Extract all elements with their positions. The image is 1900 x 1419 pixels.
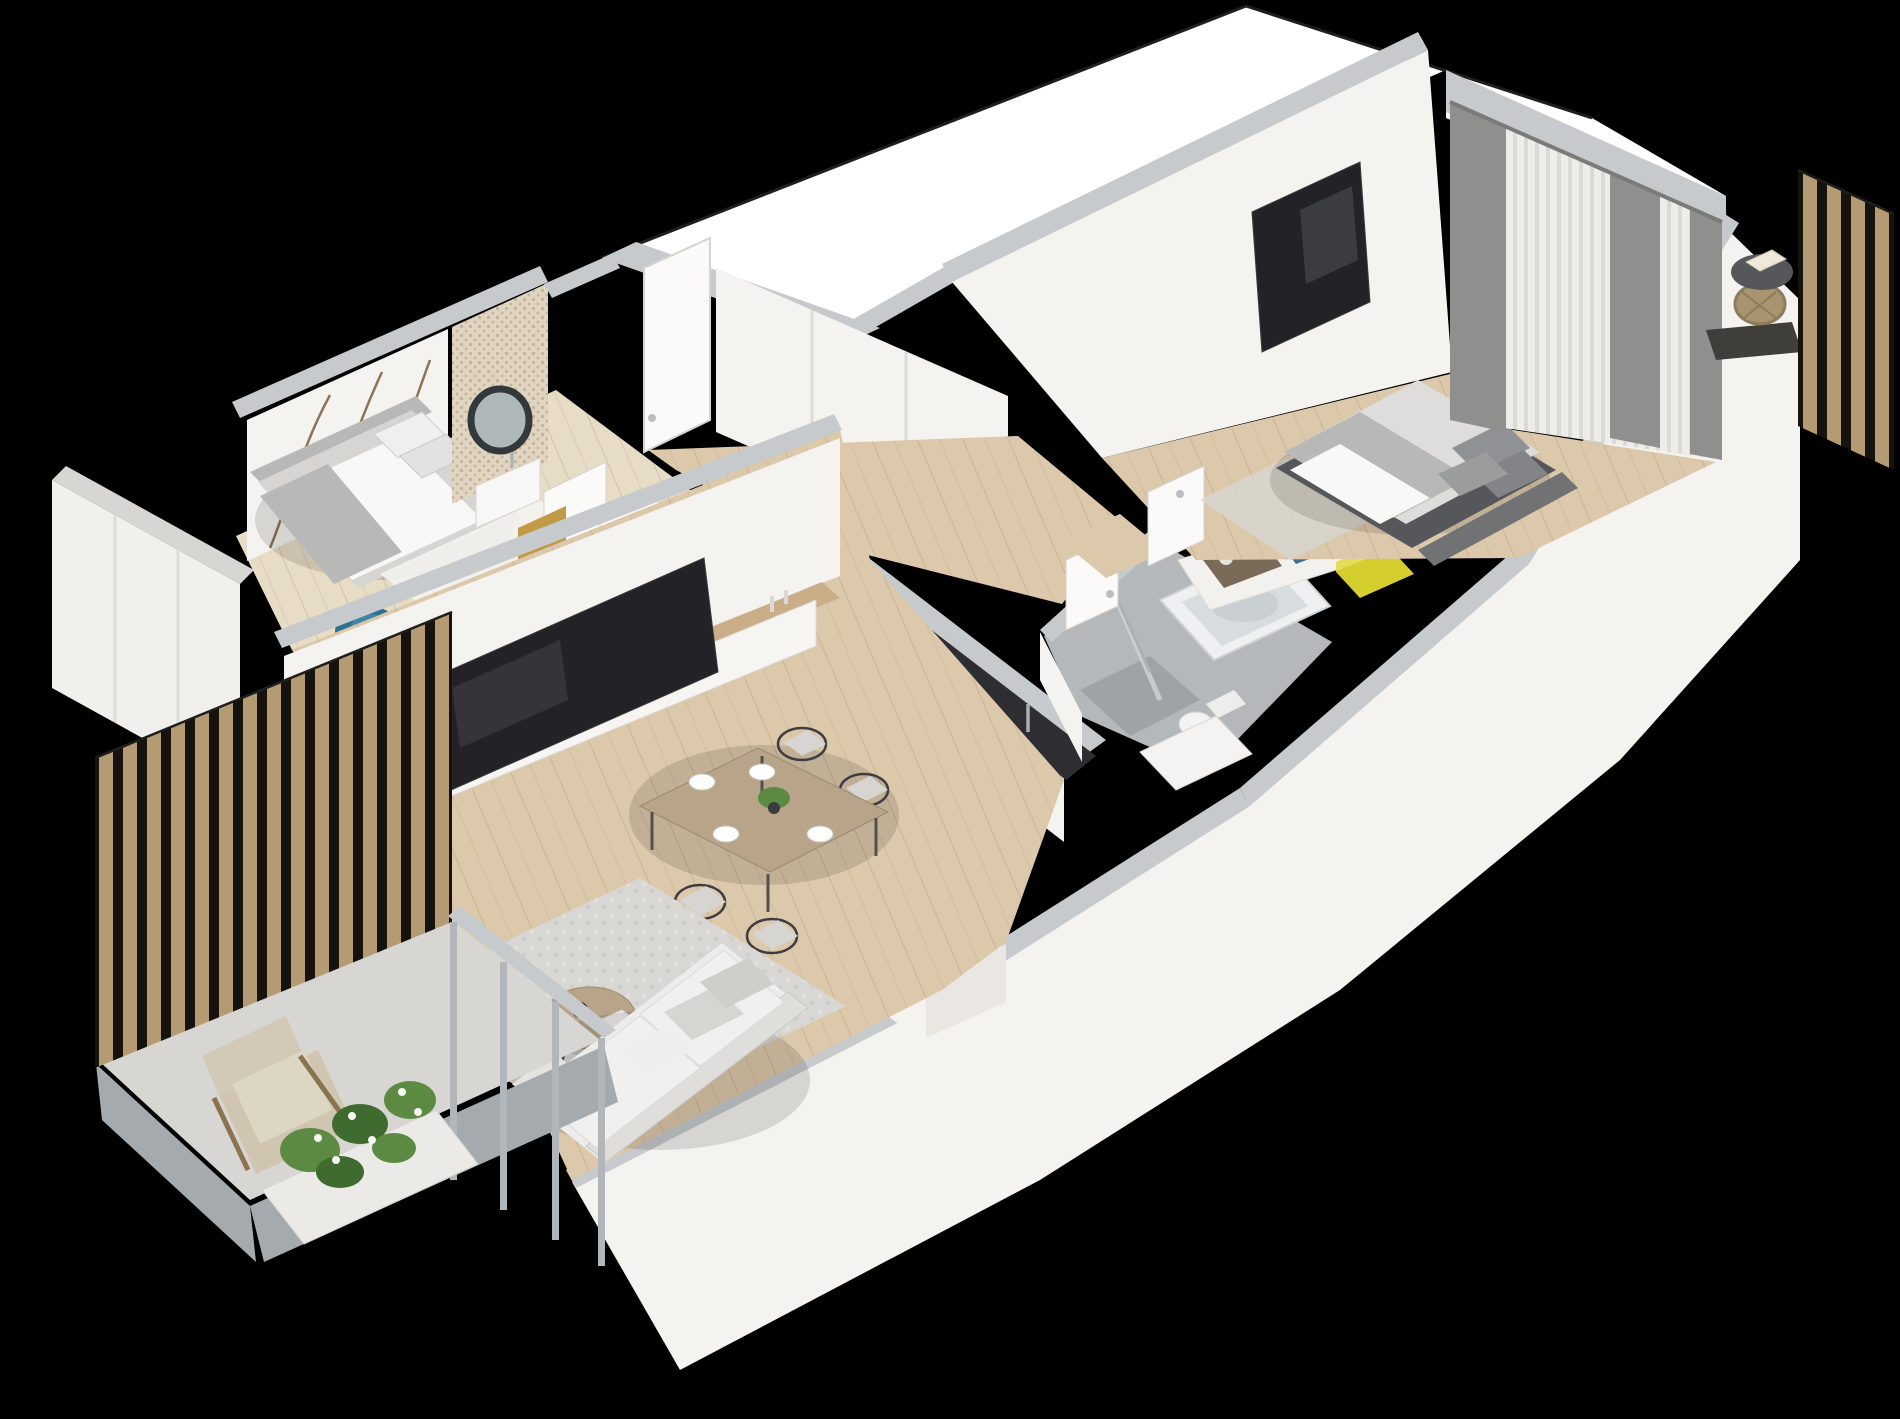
glazing-mullion-4	[598, 1038, 605, 1266]
place-setting-4	[807, 826, 833, 842]
bathroom-door-handle	[1106, 590, 1114, 598]
glazing-mullion-2	[500, 962, 507, 1210]
floorplan-stage	[0, 0, 1900, 1419]
place-setting-2	[749, 764, 775, 780]
gray-drape	[1450, 102, 1506, 432]
glazing-mullion-3	[552, 1002, 559, 1240]
timber-slat-screen-right	[1798, 170, 1894, 470]
master-door-handle	[1176, 490, 1184, 498]
centerpiece-vase	[768, 802, 780, 814]
wire-chair-4	[747, 919, 798, 953]
round-mirror	[471, 389, 529, 451]
place-setting-3	[713, 826, 739, 842]
floorplan-canvas	[0, 0, 1900, 1419]
gray-drape-2	[1610, 172, 1660, 448]
entrance-door-handle	[648, 414, 656, 422]
place-setting	[689, 774, 715, 790]
